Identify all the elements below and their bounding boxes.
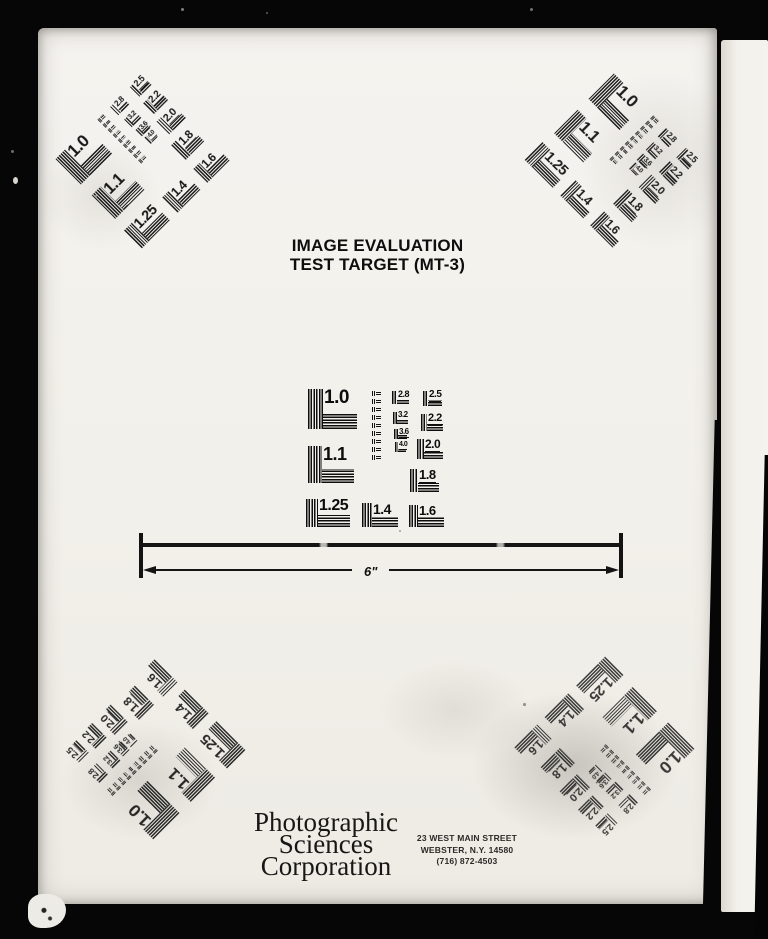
border-speck [13, 177, 18, 184]
arrow-shaft [156, 569, 352, 571]
resolution-patch-3.6: 3.6 [394, 429, 411, 439]
resolution-patch-1.8: 1.8 [613, 189, 649, 225]
page-dot [523, 703, 526, 706]
resolution-patch-2.5: 2.5 [423, 391, 446, 406]
vertical-stripes [410, 469, 418, 492]
micro-resolution-mark [641, 786, 651, 796]
arrowhead-left-icon [143, 566, 156, 574]
resolution-patch-1.8: 1.8 [171, 124, 207, 160]
horizontal-stripes [418, 483, 439, 492]
micro-resolution-mark [138, 154, 148, 164]
resolution-label: 1.8 [419, 468, 436, 483]
title-line-1: IMAGE EVALUATION [270, 236, 485, 255]
border-speck [266, 12, 268, 14]
company-line-3: Corporation [228, 855, 424, 877]
arrow-shaft [389, 569, 606, 571]
microfilm-scan: 1.01.11.251.41.62.83.23.64.02.52.22.01.8… [0, 0, 768, 939]
page-curl-blob [28, 894, 66, 928]
resolution-patch-4.0: 4.0 [395, 442, 410, 452]
resolution-patch-2.8: 2.8 [616, 794, 638, 816]
ruler-end-bar-right [619, 533, 623, 578]
resolution-patch-1.25: 1.25 [306, 499, 354, 527]
vertical-stripes [409, 505, 418, 527]
micro-resolution-mark [372, 431, 382, 436]
page-dot [399, 530, 401, 532]
resolution-patch-1.1: 1.1 [308, 446, 358, 483]
ruler-arrow: 6" [143, 563, 619, 577]
horizontal-stripes [398, 449, 406, 452]
resolution-patch-1.6: 1.6 [409, 505, 448, 527]
horizontal-stripes [397, 420, 408, 424]
resolution-label: 1.25 [319, 498, 348, 514]
resolution-patch-1.8: 1.8 [538, 748, 575, 785]
address-line-2: WEBSTER, N.Y. 14580 [413, 845, 521, 857]
vertical-stripes [362, 503, 372, 527]
test-target-center: 1.01.11.251.41.62.83.23.64.02.52.22.01.8 [306, 379, 448, 527]
border-speck [11, 150, 14, 153]
vertical-stripes [308, 389, 323, 429]
company-name: Photographic Sciences Corporation [228, 811, 424, 877]
resolution-patch-2.2: 2.2 [421, 414, 447, 431]
vertical-stripes [417, 439, 424, 459]
resolution-patch-1.8: 1.8 [117, 683, 154, 720]
horizontal-stripes [397, 399, 409, 404]
resolution-patch-3.2: 3.2 [393, 412, 412, 424]
resolution-label: 1.0 [324, 388, 349, 407]
address-line-1: 23 WEST MAIN STREET [413, 833, 521, 845]
vertical-stripes [306, 499, 318, 527]
horizontal-stripes [398, 435, 407, 439]
micro-resolution-mark [372, 439, 382, 444]
page-dot [95, 195, 97, 197]
horizontal-stripes [322, 469, 354, 483]
border-speck [181, 8, 184, 11]
address-line-3: (716) 872-4503 [413, 856, 521, 868]
micro-resolution-mark [372, 399, 382, 404]
title-block: IMAGE EVALUATION TEST TARGET (MT-3) [270, 236, 485, 274]
micro-resolution-mark [372, 447, 382, 452]
horizontal-stripes [323, 413, 357, 429]
resolution-patch-1.0: 1.0 [308, 389, 361, 429]
six-inch-ruler: 6" [139, 533, 623, 581]
resolution-label: 1.6 [419, 504, 436, 517]
micro-resolution-mark [372, 455, 382, 460]
micro-resolution-mark [372, 423, 382, 428]
resolution-patch-1.8: 1.8 [410, 469, 443, 492]
resolution-patch-2.8: 2.8 [392, 391, 413, 404]
arrowhead-right-icon [606, 566, 619, 574]
resolution-label: 1.1 [323, 445, 347, 463]
title-line-2: TEST TARGET (MT-3) [270, 255, 485, 274]
resolution-label: 1.4 [373, 502, 391, 516]
horizontal-stripes [424, 451, 443, 459]
vertical-stripes [308, 446, 322, 483]
ruler-label: 6" [352, 564, 389, 579]
micro-resolution-mark [372, 407, 382, 412]
resolution-patch-2.5: 2.5 [593, 813, 618, 838]
resolution-patch-2.0: 2.0 [417, 439, 447, 459]
resolution-patch-1.4: 1.4 [362, 503, 402, 527]
ruler-line [142, 543, 620, 547]
horizontal-stripes [372, 517, 398, 527]
horizontal-stripes [418, 517, 444, 527]
horizontal-stripes [428, 400, 442, 406]
micro-resolution-mark [372, 415, 382, 420]
company-address: 23 WEST MAIN STREET WEBSTER, N.Y. 14580 … [413, 833, 521, 868]
horizontal-stripes [427, 424, 443, 431]
border-speck [530, 8, 533, 11]
micro-resolution-mark [372, 391, 382, 396]
horizontal-stripes [318, 515, 350, 527]
resolution-label: 2.0 [425, 438, 440, 452]
